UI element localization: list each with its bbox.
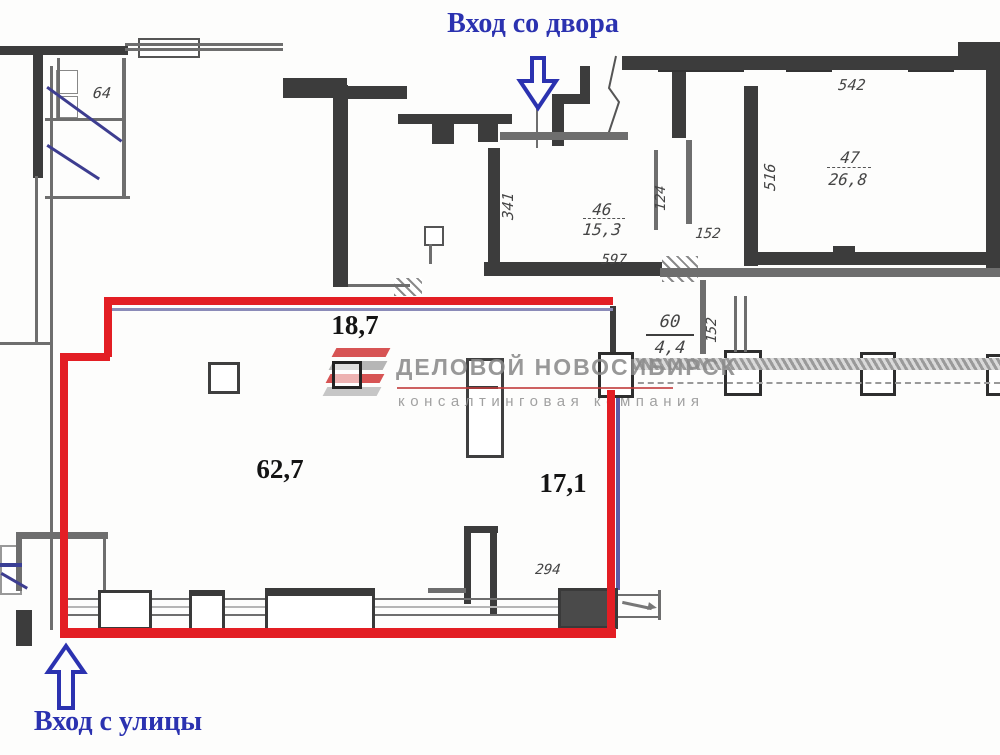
dimension-label: 124 [653,177,669,219]
wall-segment [33,46,43,178]
highlight-outline-segment [607,390,615,638]
zone-area-label-right: 17,1 [508,468,618,499]
wall-segment [429,244,432,264]
wall-segment [958,42,1000,56]
wall-segment [125,48,283,51]
room-60-number: 60 [647,312,693,332]
wall-segment [616,616,660,618]
zone-area-label-top: 18,7 [300,310,410,341]
wall-segment [660,268,1000,277]
watermark-tagline: консалтинговая компания [398,393,705,410]
leader-arrowhead [647,602,657,612]
hatched-opening [394,278,422,296]
watermark-company-name: ДЕЛОВОЙ НОВОСИБИРСК [396,354,737,381]
courtyard-entrance-arrow [518,56,558,110]
wall-segment [333,85,348,287]
highlight-outline-segment [60,628,616,638]
dimension-label: 152 [689,226,727,242]
room-47-separator [827,167,871,168]
dimension-label: 294 [525,562,571,578]
wall-segment [986,70,1000,268]
wall-segment [103,539,106,591]
watermark-underline [397,387,673,389]
wall-segment [35,176,38,344]
dimension-label: 597 [591,252,637,268]
room-47-number: 47 [827,148,873,167]
highlight-outline-segment [104,297,112,357]
room-46-number: 46 [579,200,625,219]
wall-segment [622,56,1000,70]
wall-segment [45,196,130,199]
wall-segment [833,246,855,260]
dimension-label: 542 [829,76,875,94]
highlight-outline-segment [60,353,68,638]
zone-area-label-main: 62,7 [225,454,335,485]
courtyard-entrance-label: Вход со двора [418,8,648,40]
wall-segment [345,86,407,99]
window-pier [98,590,152,630]
wall-segment [57,58,60,120]
stairs-cross-line [46,144,100,180]
wall-segment [500,132,628,140]
highlight-outline-segment [107,297,613,305]
wall-segment [610,306,616,354]
dimension-label: 64 [83,84,121,102]
room-47-area: 26,8 [819,170,877,189]
wall-segment [348,284,410,287]
wall-segment [0,46,128,55]
porch-step [0,563,22,567]
dimension-label: 152 [704,309,720,351]
wall-segment [658,590,661,620]
wall-segment [686,140,692,224]
wall-segment [428,588,466,593]
floor-plan: 64 341 597 124 152 542 516 152 294 46 15… [0,0,1000,755]
wall-segment [125,43,283,46]
wall-segment [672,72,686,138]
wall-segment [744,252,1000,265]
room-60-fraction-line [646,334,694,336]
break-line [602,54,624,140]
wall-segment [122,58,126,198]
watermark-logo-icon [324,346,390,406]
wall-segment [16,610,32,646]
wall-segment [432,124,454,144]
wall-segment [580,66,590,104]
wall-segment [490,526,497,614]
wall-niche [424,226,444,246]
window-pier [189,590,225,631]
colonnade-axis [628,382,1000,384]
room-46-area: 15,3 [575,220,629,239]
wall-segment [0,342,52,345]
wall-segment [398,114,512,124]
dimension-label: 516 [761,154,779,200]
dimension-label: 341 [499,181,517,231]
wall-segment [744,296,747,352]
wall-segment [744,86,758,266]
column-square [208,362,240,394]
wall-segment [734,296,737,352]
street-entrance-arrow [46,644,86,710]
wall-segment [478,124,498,142]
street-entrance-label: Вход с улицы [8,706,228,738]
wall-segment [616,594,660,596]
